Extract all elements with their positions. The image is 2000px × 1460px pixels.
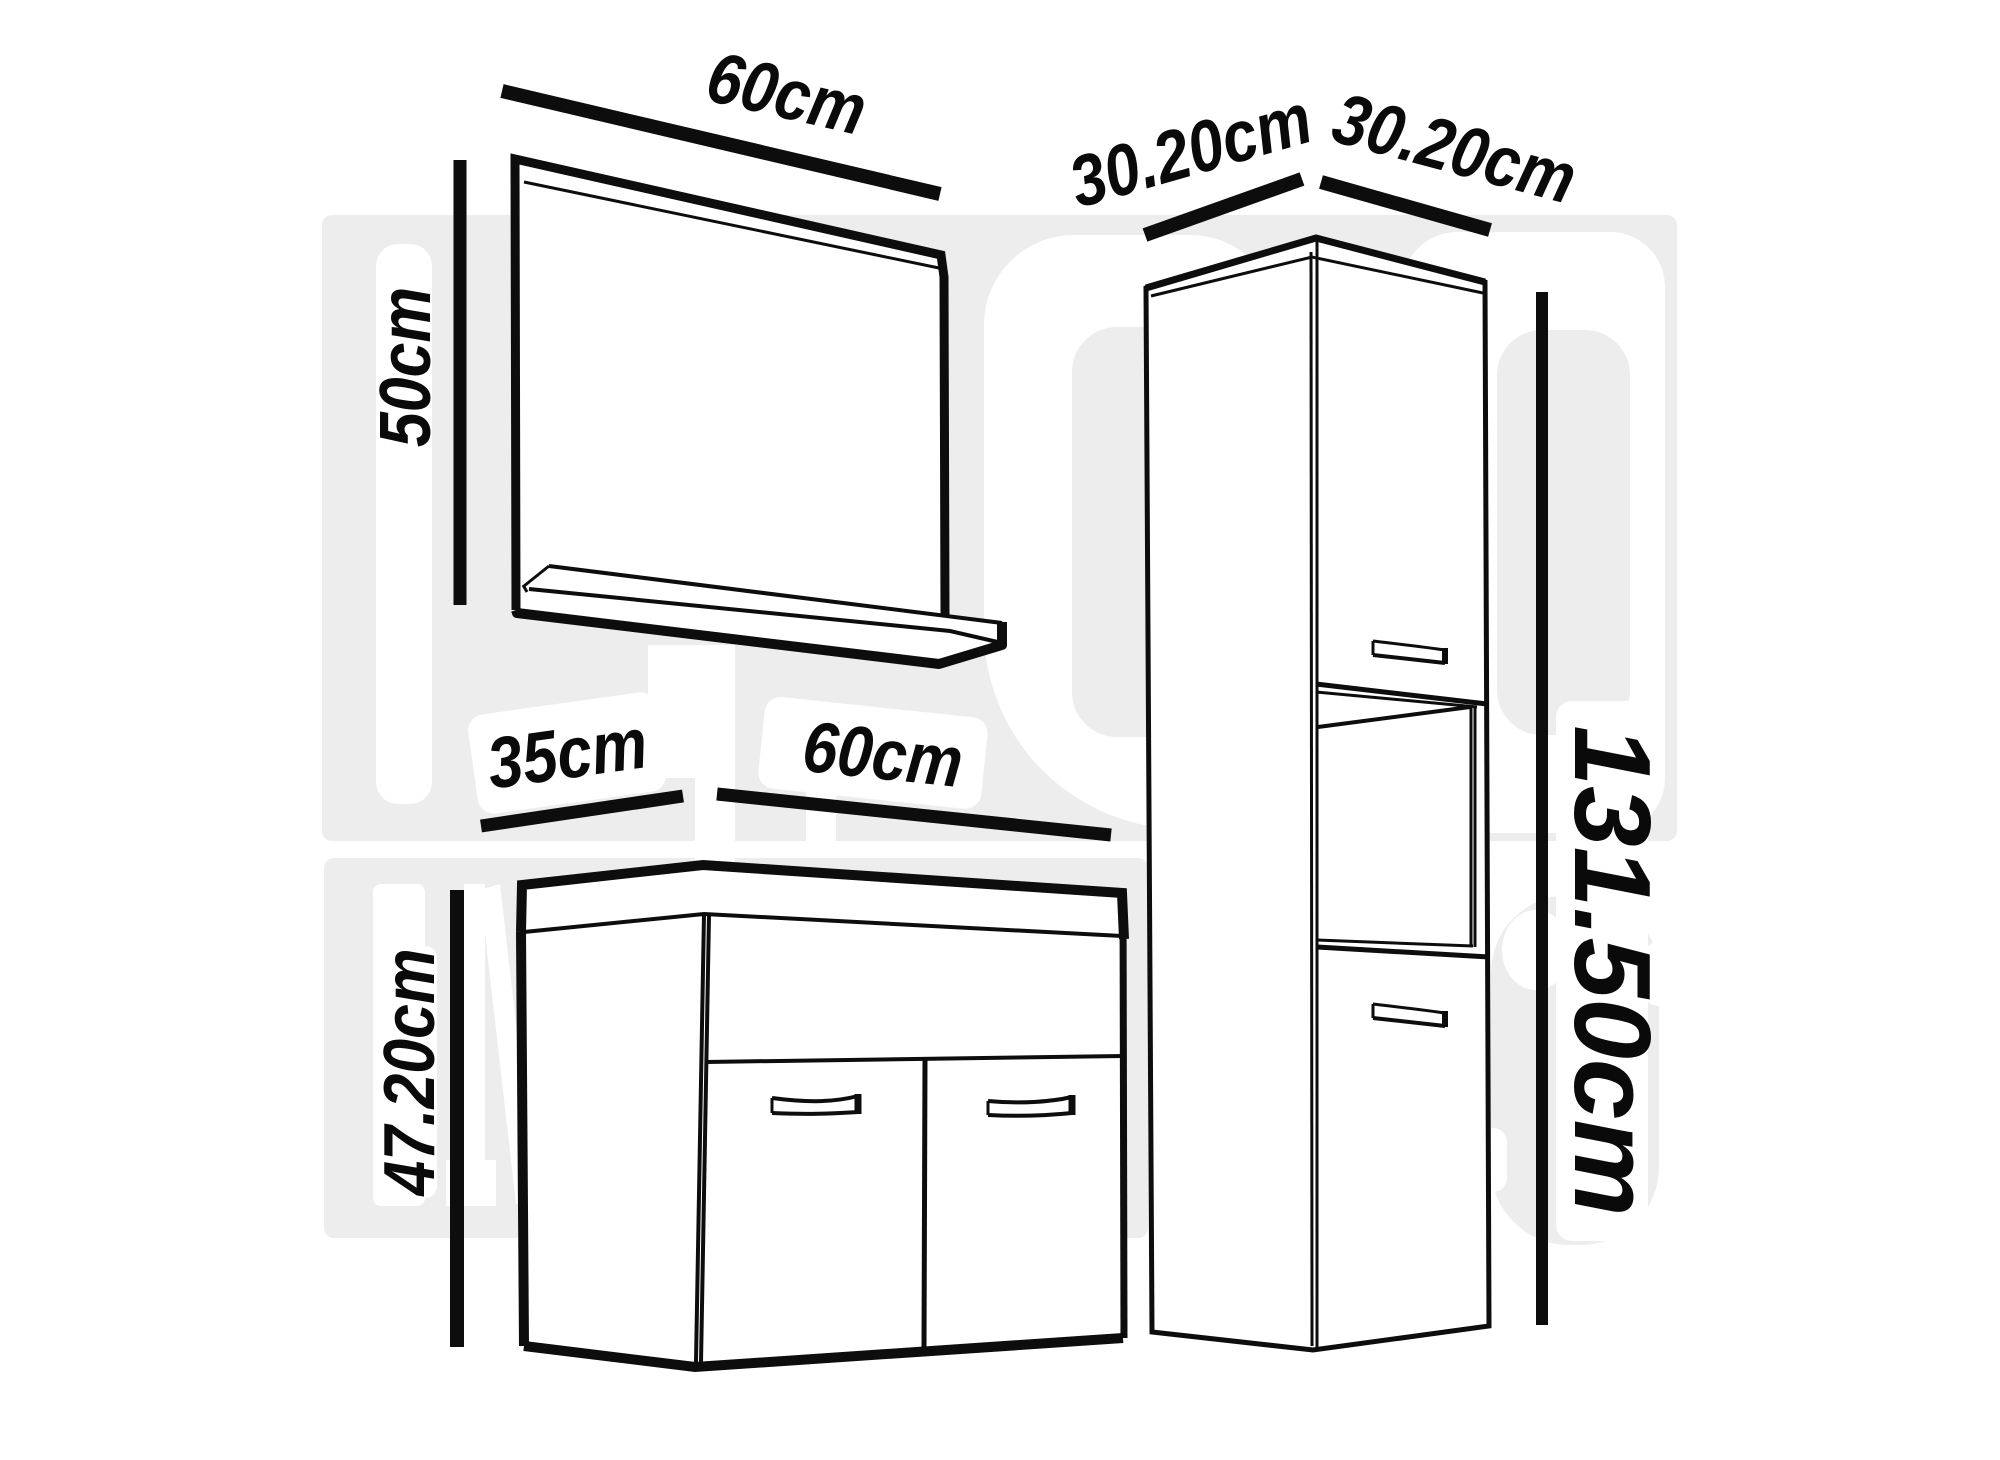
svg-text:131.50cm: 131.50cm <box>1551 726 1673 1217</box>
svg-text:50cm: 50cm <box>366 287 446 447</box>
svg-text:60cm: 60cm <box>799 707 967 803</box>
svg-text:47.20cm: 47.20cm <box>370 948 450 1197</box>
